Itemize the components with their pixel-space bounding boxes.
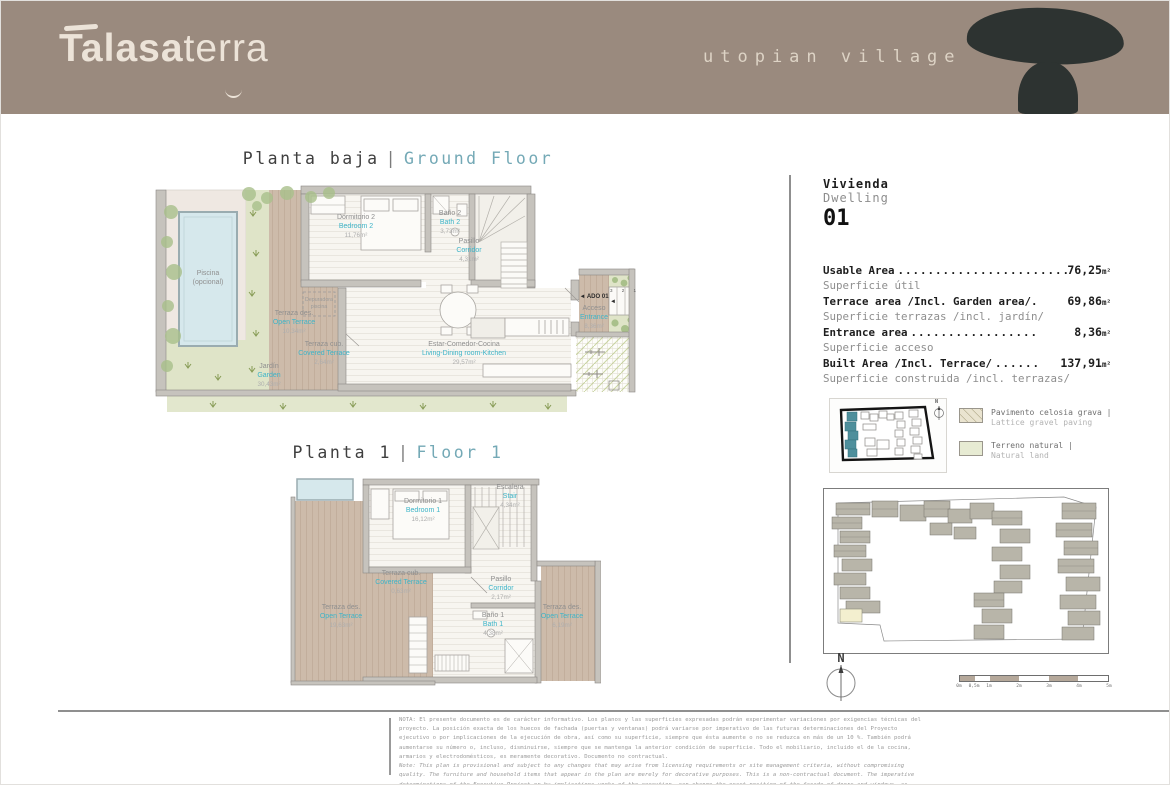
area-sub: Superficie útil (823, 279, 1111, 294)
scale-tick: 3m (1046, 684, 1051, 689)
dwelling-label-es: Vivienda (823, 177, 889, 191)
dwelling-label-en: Dwelling (823, 191, 889, 205)
area-unit: m² (1102, 358, 1111, 372)
dot-leader: ................. (908, 326, 1075, 340)
room-label-covered-terrace: Terraza cub. Covered Terrace 0,63m² (375, 570, 427, 596)
logo-accent-bottom (225, 89, 242, 98)
first-floor-plan: Dormitorio 1 Bedroom 1 16,12m² Escalera … (289, 477, 601, 705)
legend-row: Pavimento celosia grava | Lattice gravel… (959, 408, 1111, 429)
ground-floor-title-es: Planta baja (243, 149, 380, 168)
area-unit: m² (1102, 265, 1111, 279)
note-divider (389, 718, 391, 775)
dot-leader: ........................ (895, 264, 1068, 278)
mini-site-plan-drawing (829, 398, 947, 473)
compass-icon (821, 663, 861, 703)
title-separator: | (380, 149, 404, 168)
legal-note-en: Note: This plan is provisional and subje… (399, 762, 923, 785)
first-floor-title-en: Floor 1 (416, 443, 503, 462)
room-label-bedroom1: Dormitorio 1 Bedroom 1 16,12m² (404, 498, 442, 524)
title-separator: | (392, 443, 416, 462)
area-unit: m² (1102, 296, 1111, 310)
compass: N (821, 653, 861, 705)
scale-tick: 0,5m (969, 684, 980, 689)
legend-swatch-gravel (959, 408, 983, 423)
room-label-corridor: Pasillo Corridor 2,17m² (488, 576, 513, 602)
area-value: 137,91 (1060, 356, 1102, 370)
first-floor-title: Planta 1|Floor 1 (153, 443, 643, 462)
room-label-open-terrace: Terraza des. Open Terrace 10,34m² (273, 310, 315, 336)
legend-label-es: Terreno natural | (991, 441, 1073, 451)
legend-row: Terreno natural | Natural land (959, 441, 1111, 462)
room-label-entrance: Acceso Entrance 8,36m² (580, 305, 608, 331)
legal-note: NOTA: El presente documento es de caráct… (399, 716, 923, 785)
area-row: Usable Area ........................ 76,… (823, 263, 1111, 279)
room-label-living: Estar-Comedor-Cocina Living-Dining room-… (422, 341, 506, 367)
legend-swatch-natural (959, 441, 983, 456)
site-map (823, 488, 1109, 654)
mini-site-plan (829, 398, 947, 473)
area-label: Terrace area /Incl. Garden area/. (823, 295, 1038, 309)
area-row: Terrace area /Incl. Garden area/. 69,86m… (823, 294, 1111, 310)
room-label-stair: Escalera Stair 4,34m² (496, 484, 523, 510)
brand-logo: Talasaterra (59, 27, 269, 71)
ground-floor-plan-drawing (153, 184, 641, 416)
room-label-bath1: Baño 1 Bath 1 4,38m² (482, 612, 504, 638)
entrance-arrow-marker: ◄ (610, 299, 616, 305)
mini-compass-label: N (935, 399, 938, 405)
first-floor-plan-drawing (289, 477, 601, 705)
scale-tick: 1m (986, 684, 991, 689)
area-unit: m² (1102, 327, 1111, 341)
sidebar-divider (789, 175, 791, 663)
compass-label: N (821, 653, 861, 663)
dwelling-block: Vivienda Dwelling 01 (823, 177, 889, 232)
area-value: 69,86 (1067, 294, 1102, 308)
dwelling-01-location (840, 609, 862, 622)
scale-bar-segments (959, 675, 1109, 682)
legend-label-en: Lattice gravel paving (991, 418, 1111, 428)
room-label-covered-terrace: Terraza cub. Covered Terrace 2,64m² (298, 341, 350, 367)
area-label: Built Area /Incl. Terrace/ (823, 357, 992, 371)
area-summary: Usable Area ........................ 76,… (823, 263, 1111, 387)
dwelling-number: 01 (823, 206, 889, 232)
ground-floor-title-en: Ground Floor (404, 149, 553, 168)
ground-floor-plan: Piscina (opcional) Jardín Garden 30,43m²… (153, 184, 641, 416)
kitchen-counter (505, 318, 569, 336)
room-label-bedroom2: Dormitorio 2 Bedroom 2 11,76m² (337, 214, 375, 240)
room-label-open-terrace-right: Terraza des. Open Terrace 6,19m² (541, 604, 583, 630)
area-label: Entrance area (823, 326, 908, 340)
stone-graphic-bottom (1018, 62, 1078, 114)
room-label-depuradora: Depuradora piscina (305, 297, 333, 311)
room-label-garden: Jardín Garden 30,43m² (257, 363, 280, 389)
scale-tick: 5m (1106, 684, 1111, 689)
stone-graphic-top (966, 5, 1125, 66)
area-row: Entrance area ................. 8,36m² (823, 325, 1111, 341)
area-sub: Superficie terrazas /incl. jardín/ (823, 310, 1111, 325)
brand-logo-light: terra (184, 27, 269, 70)
header-band: Talasaterra utopian village (1, 1, 1170, 114)
legend-label-es: Pavimento celosia grava | (991, 408, 1111, 418)
room-label-piscina: Piscina (opcional) (193, 270, 224, 288)
upper-pool (297, 479, 353, 500)
area-value: 76,25 (1067, 263, 1102, 277)
site-buildings (832, 501, 1100, 640)
area-value: 8,36 (1074, 325, 1102, 339)
legend-label-en: Natural land (991, 451, 1073, 461)
brand-logo-bold: Talasa (59, 27, 184, 70)
project-tagline: utopian village (703, 47, 962, 67)
first-floor-title-es: Planta 1 (293, 443, 392, 462)
area-label: Usable Area (823, 264, 895, 278)
dot-leader: ...... (992, 357, 1060, 371)
ado-label: ◄ ADO 01 (579, 294, 608, 300)
parking-area (576, 337, 634, 392)
legend: Pavimento celosia grava | Lattice gravel… (959, 408, 1111, 474)
scale-bar: 0m 0,5m 1m 2m 3m 4m 5m (959, 675, 1109, 693)
entrance-step-numbers: 3 2 1 (610, 288, 640, 293)
scale-tick: 2m (1016, 684, 1021, 689)
legal-note-es: NOTA: El presente documento es de caráct… (399, 716, 923, 762)
area-sub: Superficie construida /incl. terrazas/ (823, 372, 1111, 387)
area-sub: Superficie acceso (823, 341, 1111, 356)
scale-tick: 0m (956, 684, 961, 689)
room-label-bath2: Baño 2 Bath 2 3,73m² (439, 210, 461, 236)
area-row: Built Area /Incl. Terrace/ ...... 137,91… (823, 356, 1111, 372)
scale-tick: 4m (1076, 684, 1081, 689)
room-label-open-terrace-left: Terraza des. Open Terrace 19,63m² (320, 604, 362, 630)
site-map-drawing (824, 489, 1108, 653)
footer-rule (58, 710, 1170, 712)
room-label-corridor: Pasillo Corridor 4,31m² (456, 238, 481, 264)
brochure-page: Talasaterra utopian village Planta baja|… (0, 0, 1170, 785)
ground-floor-title: Planta baja|Ground Floor (153, 149, 643, 168)
